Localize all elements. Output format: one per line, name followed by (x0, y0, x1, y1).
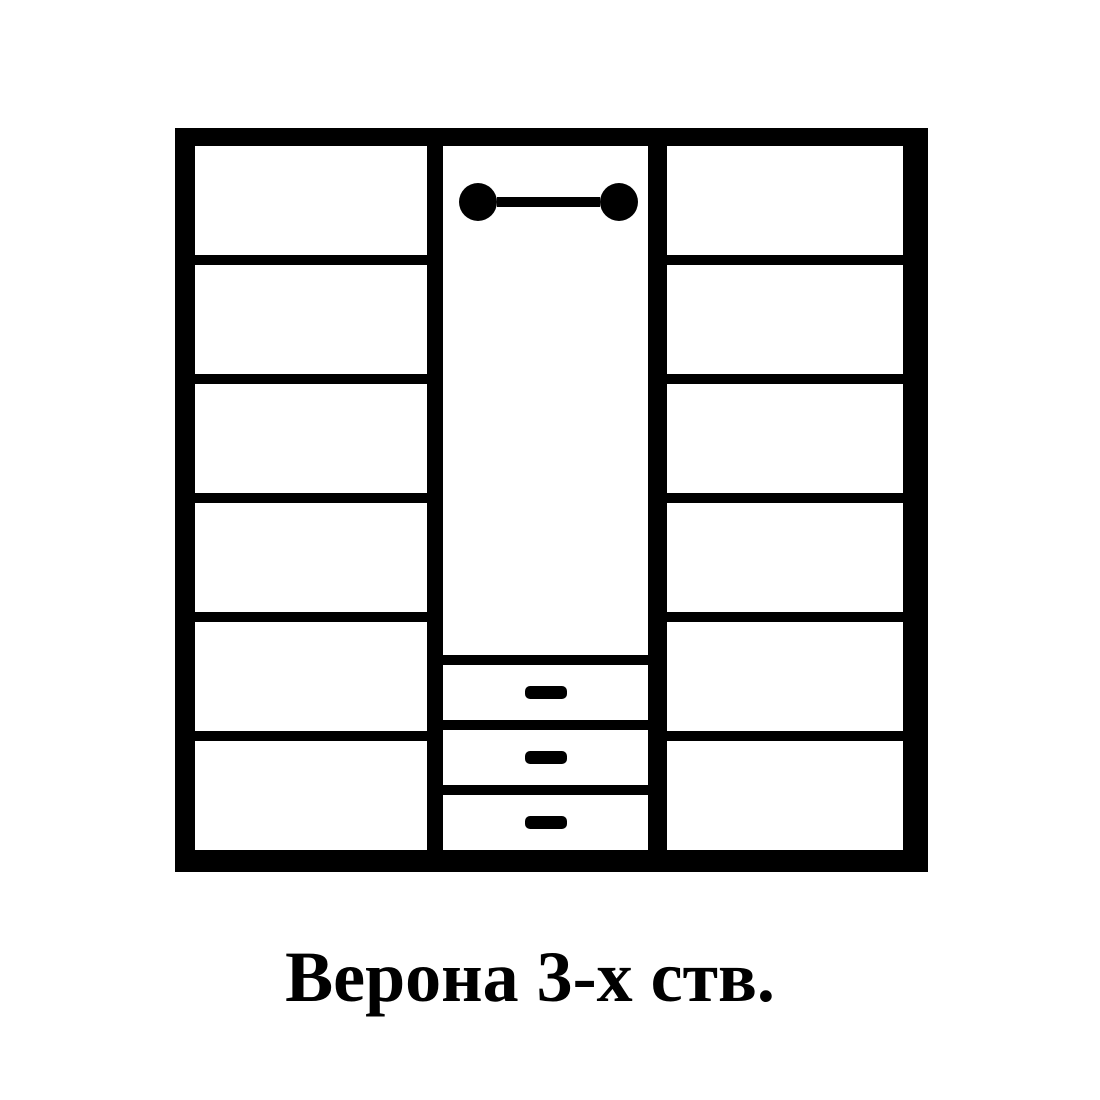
right-shelf-column (667, 146, 903, 850)
hanger-knob-right-icon (600, 183, 638, 221)
drawer-handle-icon (525, 686, 567, 699)
shelf-compartment (667, 255, 903, 374)
hanger-rod-icon (459, 183, 638, 221)
vertical-divider-left (427, 146, 443, 850)
shelf-compartment (667, 731, 903, 850)
shelf-compartment (195, 255, 427, 374)
shelf-compartment (667, 612, 903, 731)
drawer (443, 785, 648, 850)
drawer (443, 720, 648, 785)
hanging-area (443, 146, 648, 655)
drawer (443, 665, 648, 720)
diagram-caption: Верона 3-х ств. (0, 936, 1080, 1019)
drawer-handle-icon (525, 751, 567, 764)
vertical-divider-right (648, 146, 667, 850)
shelf-compartment (667, 146, 903, 255)
drawer-stack (443, 655, 648, 850)
shelf-compartment (667, 374, 903, 493)
drawer-handle-icon (525, 816, 567, 829)
hanger-knob-left-icon (459, 183, 497, 221)
wardrobe-diagram (175, 128, 928, 872)
hanger-rod-bar (497, 197, 600, 207)
shelf-compartment (195, 731, 427, 850)
shelf-compartment (195, 146, 427, 255)
center-column (443, 146, 648, 850)
shelf-compartment (195, 612, 427, 731)
shelf-compartment (667, 493, 903, 612)
left-shelf-column (195, 146, 427, 850)
shelf-compartment (195, 374, 427, 493)
page-canvas: Верона 3-х ств. (0, 0, 1100, 1100)
shelf-compartment (195, 493, 427, 612)
